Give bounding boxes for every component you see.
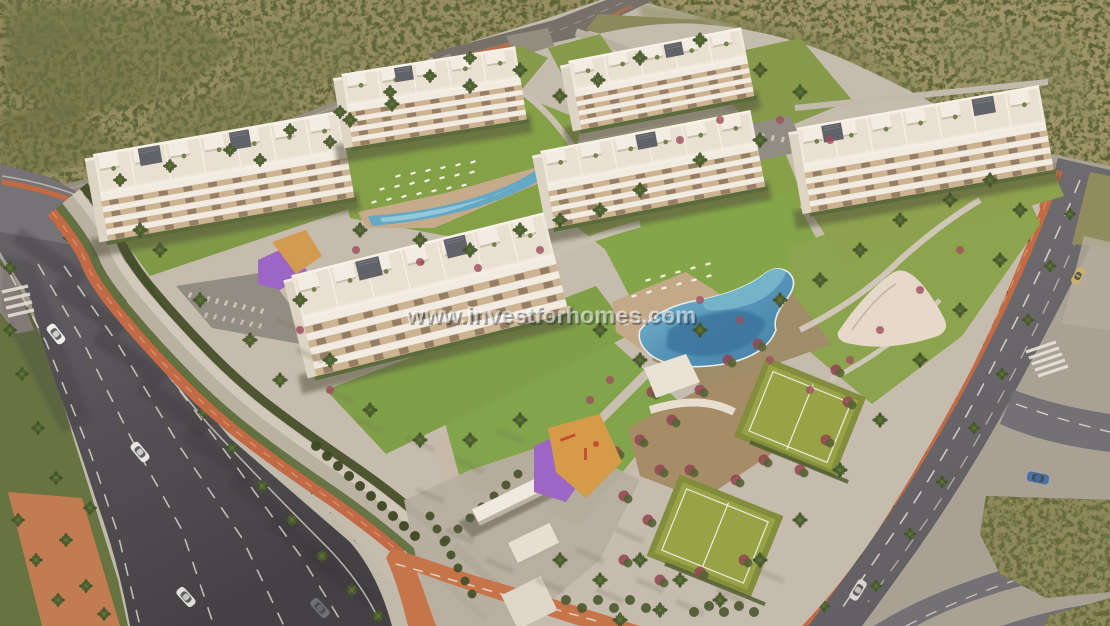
- svg-text:www.investforhomes.com: www.investforhomes.com: [405, 302, 696, 328]
